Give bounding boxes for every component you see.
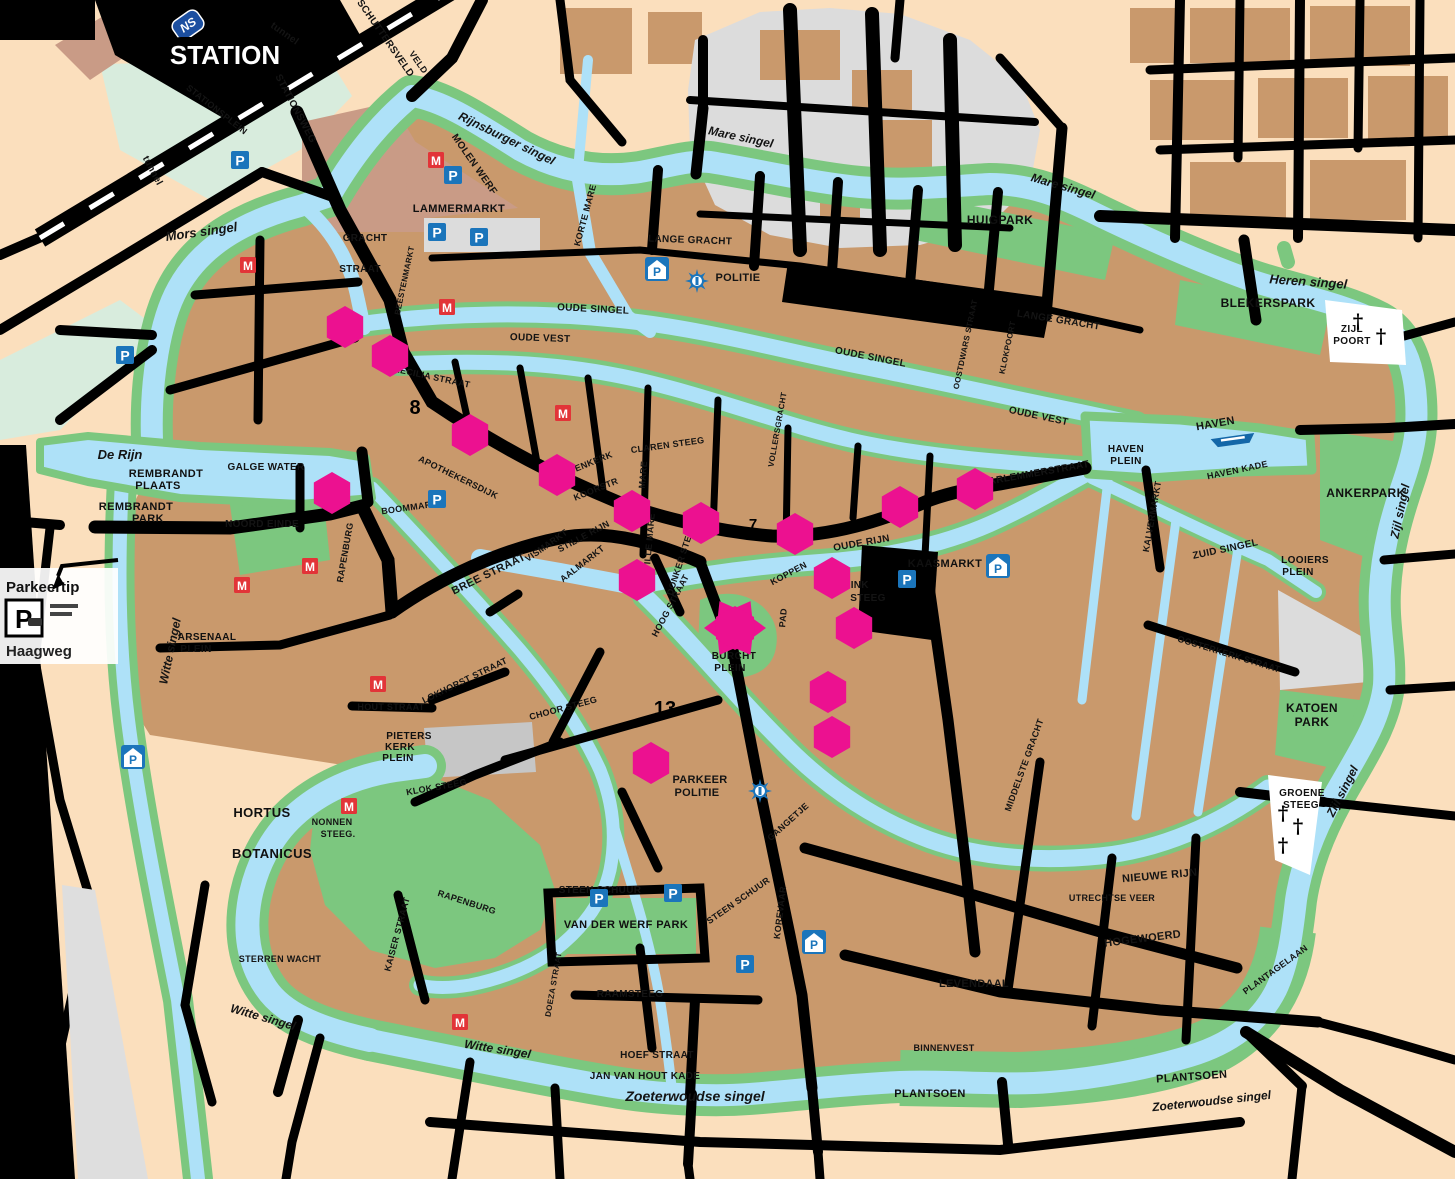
parking-garage-icon: P — [645, 257, 669, 281]
street-label: LEVENDAAL — [939, 978, 1009, 990]
parking-icon: P — [736, 955, 754, 973]
museum-icon: M — [452, 1014, 468, 1030]
area-label: ARSENAAL — [178, 632, 237, 643]
area-label: POORT — [1333, 336, 1371, 347]
svg-text:M: M — [442, 301, 452, 315]
area-label: PARK — [132, 513, 164, 525]
museum-icon: M — [555, 405, 571, 421]
svg-text:M: M — [305, 560, 315, 574]
svg-text:P: P — [668, 886, 677, 902]
area-label: PLEIN — [714, 663, 745, 674]
street-label: PARKEER — [672, 774, 727, 786]
area-label: PLEIN — [382, 753, 413, 764]
svg-text:P: P — [120, 348, 129, 364]
police-icon — [685, 269, 709, 293]
svg-text:P: P — [432, 492, 441, 508]
street-label: PAD — [777, 608, 789, 628]
area-label: LOOIERS — [1281, 555, 1329, 566]
street-label: OUDE VEST — [510, 332, 571, 345]
museum-icon: M — [302, 558, 318, 574]
svg-text:P: P — [129, 753, 137, 767]
svg-text:M: M — [558, 407, 568, 421]
parkeertip-title: Parkeertip — [6, 579, 79, 596]
museum-icon: M — [341, 798, 357, 814]
station-label: STATION — [170, 40, 280, 70]
svg-text:P: P — [474, 230, 483, 246]
parking-icon: P — [116, 346, 134, 364]
water-label: De Rijn — [98, 447, 143, 462]
area-label: ANKERPARK — [1326, 486, 1405, 500]
parkeertip-block: Parkeertip P Haagweg — [0, 560, 118, 664]
area-label: KAASMARKT — [908, 558, 982, 570]
svg-text:P: P — [594, 891, 603, 907]
parkeertip-road: Haagweg — [6, 643, 72, 660]
street-label: POLITIE — [716, 272, 761, 284]
area-label: HUIGPARK — [967, 213, 1033, 227]
svg-text:P: P — [810, 938, 818, 952]
area-label: PLEIN — [180, 644, 211, 655]
area-label: PLEIN — [1110, 456, 1141, 467]
svg-text:P: P — [448, 168, 457, 184]
svg-text:M: M — [373, 678, 383, 692]
parking-garage-icon: P — [121, 745, 145, 769]
route-number: 8 — [409, 397, 420, 419]
area-label: KATOEN — [1286, 701, 1338, 715]
museum-icon: M — [370, 676, 386, 692]
svg-text:M: M — [431, 154, 441, 168]
svg-text:P: P — [653, 265, 661, 279]
area-label: REMBRANDT — [99, 501, 173, 513]
svg-text:M: M — [243, 259, 253, 273]
area-label: PLANTSOEN — [894, 1088, 965, 1100]
street-label: NOORD EINDE — [225, 519, 299, 530]
area-label: KERK — [385, 742, 415, 753]
route-number: 7 — [749, 516, 757, 533]
area-label: PIETERS — [386, 731, 432, 742]
area-label: GROENE — [1279, 788, 1325, 799]
cemetery-cross-icon: † — [1293, 814, 1303, 838]
street-label: NONNEN — [312, 817, 353, 827]
area-label: BOTANICUS — [232, 846, 312, 861]
parking-garage-icon: P — [986, 554, 1010, 578]
cemetery-cross-icon: † — [1376, 324, 1386, 348]
museum-icon: M — [439, 299, 455, 315]
parking-icon: P — [898, 570, 916, 588]
street-label: STEEG. — [321, 829, 356, 839]
parking-icon: P — [231, 151, 249, 169]
parking-icon: P — [470, 228, 488, 246]
street-label: HOEF STRAAT — [620, 1050, 694, 1061]
street-label: BINNENVEST — [913, 1043, 974, 1053]
street-label: JAN VAN HOUT KADE — [590, 1071, 701, 1082]
svg-text:M: M — [344, 800, 354, 814]
street-label: UTRECHTSE VEER — [1069, 893, 1155, 903]
street-label: STEEG — [850, 593, 885, 604]
street-label: STRAAT — [339, 264, 381, 275]
svg-text:M: M — [455, 1016, 465, 1030]
street-label: POLITIE — [675, 787, 720, 799]
museum-icon: M — [240, 257, 256, 273]
svg-text:P: P — [432, 225, 441, 241]
street-label: STERREN WACHT — [239, 954, 322, 964]
svg-text:M: M — [237, 579, 247, 593]
area-label: BLEKERSPARK — [1221, 296, 1316, 310]
street-label: GALGE WATER — [227, 462, 304, 473]
area-label: PLEIN — [1282, 567, 1313, 578]
area-label: PLAATS — [135, 480, 181, 492]
svg-text:P: P — [902, 572, 911, 588]
area-label: LAMMERMARKT — [413, 203, 505, 215]
parking-icon: P — [428, 490, 446, 508]
area-label: HAVEN — [1108, 444, 1144, 455]
zijlpoort-cemetery — [1325, 300, 1406, 365]
museum-icon: M — [428, 152, 444, 168]
area-label: HORTUS — [233, 805, 290, 820]
leiden-city-map: NS STATION Parkeertip P Haagweg Mors sin… — [0, 0, 1455, 1179]
area-label: REMBRANDT — [129, 468, 203, 480]
street-label: GRACHT — [343, 233, 388, 244]
museum-icon: M — [234, 577, 250, 593]
parking-icon: P — [664, 884, 682, 902]
route-number: 13 — [654, 698, 676, 720]
street-label: HOUT STRAAT — [357, 702, 424, 712]
area-label: STEEG — [1283, 800, 1319, 811]
street-label: RAAMSTEEG — [597, 989, 664, 1000]
cemetery-cross-icon: † — [1353, 309, 1363, 333]
svg-text:P: P — [740, 957, 749, 973]
parking-icon: P — [444, 166, 462, 184]
water-label: Zoeterwoudse singel — [624, 1088, 765, 1104]
area-label: VAN DER WERF PARK — [564, 919, 688, 931]
police-icon — [748, 779, 772, 803]
parking-icon: P — [590, 889, 608, 907]
parking-icon: P — [428, 223, 446, 241]
cemetery-cross-icon: † — [1278, 801, 1288, 825]
svg-text:P: P — [994, 562, 1002, 576]
parking-garage-icon: P — [802, 930, 826, 954]
cemetery-cross-icon: † — [1278, 833, 1288, 857]
svg-text:P: P — [235, 153, 244, 169]
area-label: PARK — [1295, 715, 1330, 729]
